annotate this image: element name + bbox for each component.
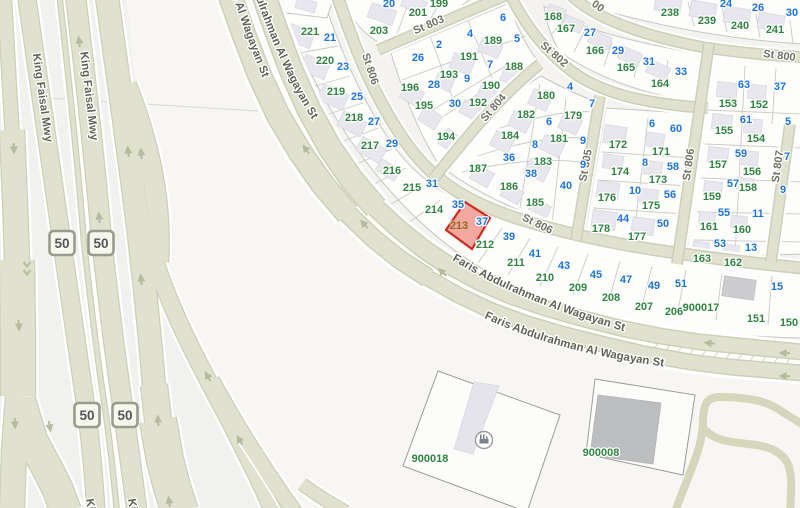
svg-text:195: 195 [415, 100, 433, 112]
svg-text:39: 39 [503, 231, 515, 243]
svg-text:159: 159 [703, 191, 721, 203]
svg-text:8: 8 [642, 157, 648, 169]
svg-text:199: 199 [430, 0, 448, 10]
svg-text:162: 162 [724, 257, 742, 269]
svg-text:180: 180 [537, 90, 555, 102]
svg-text:220: 220 [316, 55, 334, 67]
svg-text:26: 26 [752, 2, 764, 14]
svg-text:191: 191 [460, 51, 478, 63]
svg-text:209: 209 [569, 282, 587, 294]
svg-text:57: 57 [727, 178, 739, 190]
svg-text:900008: 900008 [583, 447, 620, 459]
svg-text:166: 166 [586, 45, 604, 57]
svg-text:6: 6 [500, 12, 506, 24]
svg-text:56: 56 [664, 189, 676, 201]
svg-text:35: 35 [452, 199, 464, 211]
svg-text:26: 26 [412, 52, 424, 64]
svg-text:30: 30 [786, 7, 798, 19]
svg-text:154: 154 [747, 133, 766, 145]
svg-text:4: 4 [467, 28, 474, 40]
svg-text:156: 156 [743, 166, 761, 178]
svg-text:15: 15 [771, 281, 783, 293]
svg-text:37: 37 [774, 81, 786, 93]
svg-text:213: 213 [450, 220, 468, 232]
svg-text:45: 45 [590, 269, 602, 281]
svg-text:38: 38 [525, 168, 537, 180]
svg-text:219: 219 [327, 86, 345, 98]
svg-text:28: 28 [428, 79, 440, 91]
svg-text:240: 240 [731, 20, 749, 32]
svg-text:239: 239 [698, 15, 716, 27]
svg-text:9: 9 [580, 159, 586, 171]
svg-text:51: 51 [675, 278, 687, 290]
svg-text:9: 9 [464, 73, 470, 85]
svg-text:152: 152 [750, 99, 768, 111]
svg-text:172: 172 [609, 139, 627, 151]
svg-text:6: 6 [546, 116, 552, 128]
svg-text:10: 10 [629, 185, 641, 197]
svg-text:190: 190 [482, 80, 500, 92]
svg-text:7: 7 [784, 151, 790, 163]
svg-text:44: 44 [617, 213, 630, 225]
svg-text:188: 188 [505, 61, 523, 73]
svg-text:179: 179 [564, 110, 582, 122]
svg-text:50: 50 [93, 236, 108, 251]
svg-text:176: 176 [598, 192, 616, 204]
svg-text:9: 9 [580, 135, 586, 147]
svg-text:161: 161 [700, 221, 718, 233]
svg-text:31: 31 [643, 56, 655, 68]
svg-text:50: 50 [117, 408, 132, 423]
svg-text:157: 157 [709, 159, 727, 171]
svg-text:7: 7 [487, 59, 493, 71]
svg-text:29: 29 [386, 138, 398, 150]
svg-text:59: 59 [735, 148, 747, 160]
svg-text:27: 27 [368, 116, 380, 128]
svg-text:241: 241 [766, 24, 784, 36]
svg-text:181: 181 [550, 133, 568, 145]
svg-text:24: 24 [720, 0, 733, 10]
svg-text:212: 212 [476, 239, 494, 251]
svg-text:900018: 900018 [412, 453, 449, 465]
svg-text:160: 160 [733, 224, 751, 236]
svg-text:49: 49 [648, 280, 660, 292]
svg-text:31: 31 [426, 178, 438, 190]
svg-text:183: 183 [534, 156, 552, 168]
svg-text:2: 2 [436, 39, 442, 51]
svg-text:5: 5 [785, 116, 791, 128]
svg-text:158: 158 [739, 182, 757, 194]
svg-text:30: 30 [449, 98, 461, 110]
svg-text:175: 175 [642, 200, 660, 212]
svg-text:43: 43 [558, 260, 570, 272]
svg-text:6: 6 [649, 118, 655, 130]
svg-text:27: 27 [584, 27, 596, 39]
svg-text:178: 178 [592, 223, 610, 235]
svg-text:184: 184 [501, 130, 520, 142]
svg-text:182: 182 [517, 109, 535, 121]
svg-text:168: 168 [544, 11, 562, 23]
svg-text:185: 185 [526, 197, 544, 209]
svg-text:218: 218 [345, 112, 363, 124]
svg-text:221: 221 [301, 26, 319, 38]
svg-text:151: 151 [747, 313, 765, 325]
svg-text:23: 23 [337, 61, 349, 73]
svg-text:7: 7 [589, 98, 595, 110]
svg-text:50: 50 [657, 218, 669, 230]
svg-text:210: 210 [536, 272, 554, 284]
svg-text:196: 196 [401, 82, 419, 94]
svg-text:194: 194 [437, 131, 456, 143]
svg-text:167: 167 [557, 23, 575, 35]
svg-text:8: 8 [532, 139, 538, 151]
svg-text:60: 60 [670, 123, 682, 135]
svg-text:217: 217 [361, 140, 379, 152]
svg-text:155: 155 [715, 125, 733, 137]
svg-text:153: 153 [719, 98, 737, 110]
svg-text:13: 13 [745, 242, 757, 254]
svg-text:238: 238 [661, 7, 679, 19]
svg-text:36: 36 [503, 152, 515, 164]
svg-text:187: 187 [469, 163, 487, 175]
svg-text:11: 11 [752, 208, 764, 220]
svg-text:165: 165 [617, 62, 635, 74]
svg-text:47: 47 [620, 274, 632, 286]
svg-text:53: 53 [714, 238, 726, 250]
svg-text:171: 171 [652, 146, 670, 158]
svg-text:186: 186 [500, 181, 518, 193]
svg-text:21: 21 [324, 32, 336, 44]
svg-text:203: 203 [370, 25, 388, 37]
svg-text:193: 193 [440, 69, 458, 81]
svg-text:58: 58 [667, 161, 679, 173]
svg-text:150: 150 [780, 317, 798, 329]
svg-text:55: 55 [718, 207, 730, 219]
svg-text:215: 215 [403, 182, 421, 194]
svg-text:37: 37 [476, 216, 488, 228]
svg-text:174: 174 [611, 166, 630, 178]
svg-text:192: 192 [469, 97, 487, 109]
svg-text:9: 9 [780, 184, 786, 196]
svg-text:33: 33 [675, 66, 687, 78]
svg-text:63: 63 [738, 79, 750, 91]
svg-text:207: 207 [635, 301, 653, 313]
svg-text:900017: 900017 [683, 302, 720, 314]
svg-text:208: 208 [602, 292, 620, 304]
svg-text:206: 206 [665, 306, 683, 318]
svg-text:25: 25 [351, 91, 363, 103]
svg-text:4: 4 [567, 81, 574, 93]
svg-text:40: 40 [560, 180, 572, 192]
svg-text:29: 29 [612, 45, 624, 57]
svg-text:173: 173 [649, 174, 667, 186]
svg-text:20: 20 [383, 0, 395, 10]
svg-text:216: 216 [383, 165, 401, 177]
svg-text:201: 201 [409, 7, 427, 19]
svg-text:163: 163 [693, 253, 711, 265]
svg-text:5: 5 [514, 33, 520, 45]
svg-text:50: 50 [54, 236, 69, 251]
svg-text:189: 189 [484, 35, 502, 47]
svg-text:61: 61 [740, 114, 752, 126]
svg-text:50: 50 [79, 408, 94, 423]
svg-text:214: 214 [425, 204, 444, 216]
svg-text:211: 211 [507, 257, 525, 269]
svg-text:164: 164 [651, 78, 670, 90]
svg-text:41: 41 [529, 248, 541, 260]
svg-text:177: 177 [628, 231, 646, 243]
